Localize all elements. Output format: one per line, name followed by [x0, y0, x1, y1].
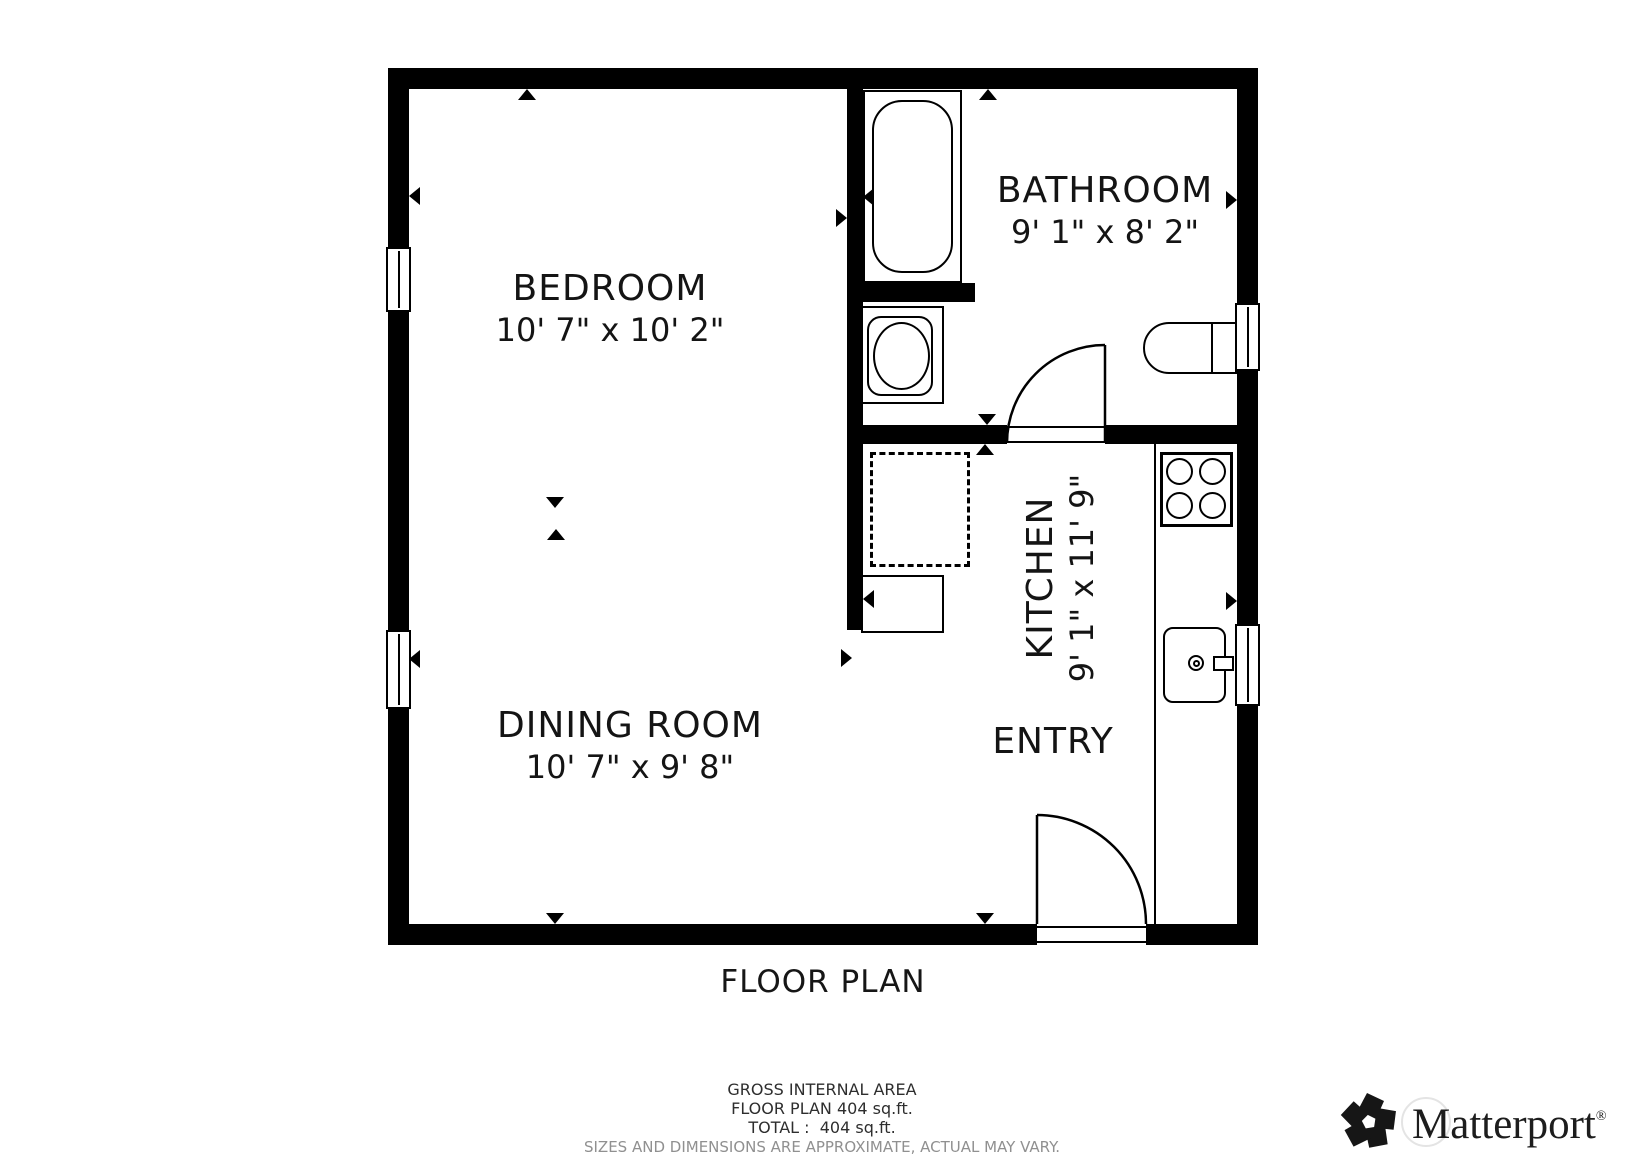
area-summary: GROSS INTERNAL AREA FLOOR PLAN 404 sq.ft… — [472, 1080, 1172, 1157]
measure-arrow-bedroom-bottom — [546, 497, 564, 508]
registered-mark: ® — [1596, 1109, 1607, 1124]
measure-arrow-kitchen-left — [863, 590, 874, 608]
plan-caption: FLOOR PLAN — [623, 964, 1023, 1000]
kitchen-dims: 9' 1" x 11' 9" — [1062, 408, 1102, 748]
measure-arrow-bedroom-right — [836, 209, 847, 227]
bedroom-dims: 10' 7" x 10' 2" — [430, 310, 790, 350]
gross-internal-area-line: GROSS INTERNAL AREA — [472, 1080, 1172, 1099]
room-label-kitchen: KITCHEN 9' 1" x 11' 9" — [1020, 408, 1104, 748]
bathroom-dims: 9' 1" x 8' 2" — [960, 212, 1250, 252]
floor-plan-area-line: FLOOR PLAN 404 sq.ft. — [472, 1099, 1172, 1118]
entry-door-arc — [1037, 815, 1146, 924]
measure-arrow-bathroom-bottom — [978, 414, 996, 425]
measure-arrow-dining-right — [841, 649, 852, 667]
bathroom-name: BATHROOM — [960, 170, 1250, 212]
measure-arrow-kitchen-right — [1226, 592, 1237, 610]
measure-arrow-bedroom-left — [409, 187, 420, 205]
room-label-bedroom: BEDROOM 10' 7" x 10' 2" — [430, 268, 790, 350]
room-label-entry: ENTRY — [953, 722, 1153, 762]
measure-arrow-entry-bottom — [976, 913, 994, 924]
room-label-bathroom: BATHROOM 9' 1" x 8' 2" — [960, 170, 1250, 252]
kitchen-name: KITCHEN — [1020, 408, 1062, 748]
total-area-line: TOTAL : 404 sq.ft. — [472, 1118, 1172, 1137]
disclaimer-line: SIZES AND DIMENSIONS ARE APPROXIMATE, AC… — [472, 1137, 1172, 1157]
floor-plan-page: BEDROOM 10' 7" x 10' 2" BATHROOM 9' 1" x… — [0, 0, 1647, 1164]
measure-arrow-dining-bottom — [546, 913, 564, 924]
measure-arrow-bathroom-left — [863, 188, 874, 206]
room-label-dining: DINING ROOM 10' 7" x 9' 8" — [440, 705, 820, 787]
bedroom-name: BEDROOM — [430, 268, 790, 310]
matterport-wordmark: Matterport® — [1412, 1094, 1607, 1148]
measure-arrow-entry-top — [976, 444, 994, 455]
matterport-logo: Matterport® — [1338, 1086, 1638, 1156]
dining-dims: 10' 7" x 9' 8" — [440, 747, 820, 787]
measure-arrow-bathroom-top — [979, 89, 997, 100]
measure-arrow-bedroom-top — [518, 89, 536, 100]
measure-arrow-dining-top — [547, 529, 565, 540]
measure-arrow-dining-left — [409, 650, 420, 668]
dining-name: DINING ROOM — [440, 705, 820, 747]
